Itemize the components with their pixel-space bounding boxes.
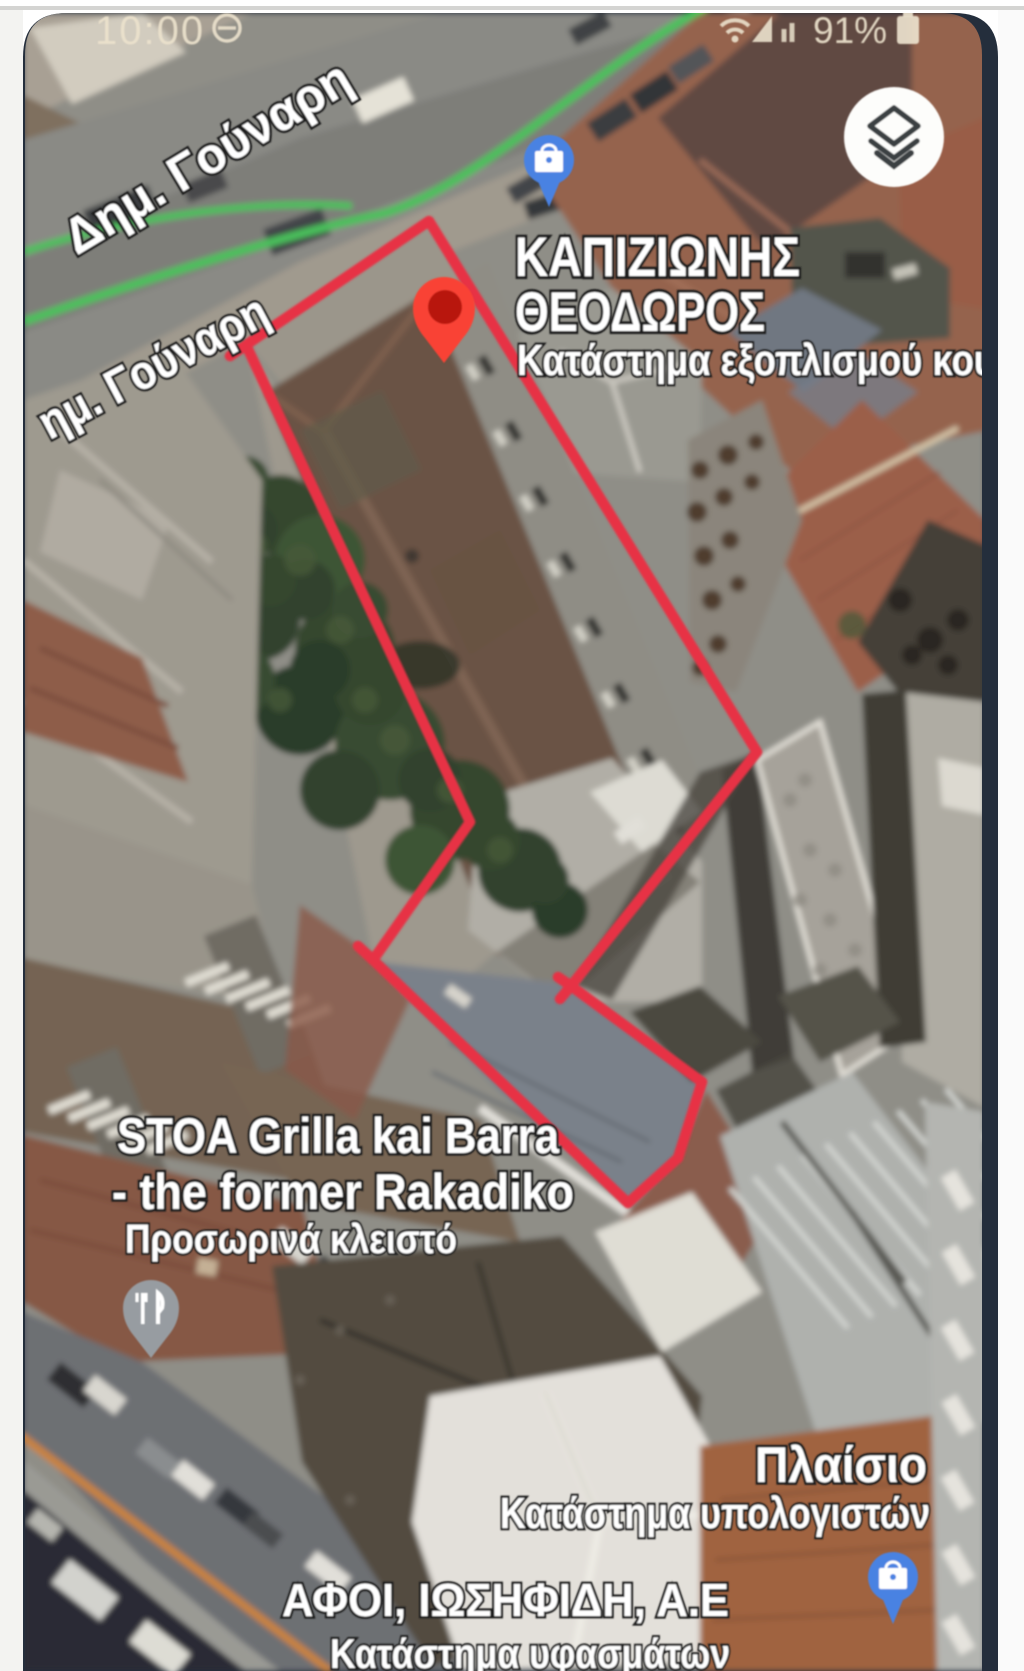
svg-text:91%: 91% [813, 10, 887, 51]
svg-text:Προσωρινά κλειστό: Προσωρινά κλειστό [125, 1216, 457, 1262]
svg-text:Πλαίσιο: Πλαίσιο [755, 1437, 927, 1493]
svg-text:ΘΕΟΔΩΡΟΣ: ΘΕΟΔΩΡΟΣ [515, 280, 765, 343]
svg-text:10:00: 10:00 [95, 9, 205, 53]
svg-text:Κατάστημα υπολογιστών: Κατάστημα υπολογιστών [500, 1489, 930, 1538]
svg-text:ΑΦΟΙ, ΙΩΣΗΦΙΔΗ, Α.Ε: ΑΦΟΙ, ΙΩΣΗΦΙΔΗ, Α.Ε [282, 1574, 729, 1626]
svg-text:ΚΑΠΙΖΙΩΝΗΣ: ΚΑΠΙΖΙΩΝΗΣ [515, 225, 800, 288]
svg-text:Κατάστημα υφασμάτων: Κατάστημα υφασμάτων [330, 1630, 730, 1671]
svg-text:- the former Rakadiko: - the former Rakadiko [112, 1164, 574, 1220]
svg-text:Κατάστημα εξοπλισμού κου: Κατάστημα εξοπλισμού κου [517, 336, 995, 385]
svg-text:STOA Grilla kai Barra: STOA Grilla kai Barra [117, 1108, 560, 1164]
